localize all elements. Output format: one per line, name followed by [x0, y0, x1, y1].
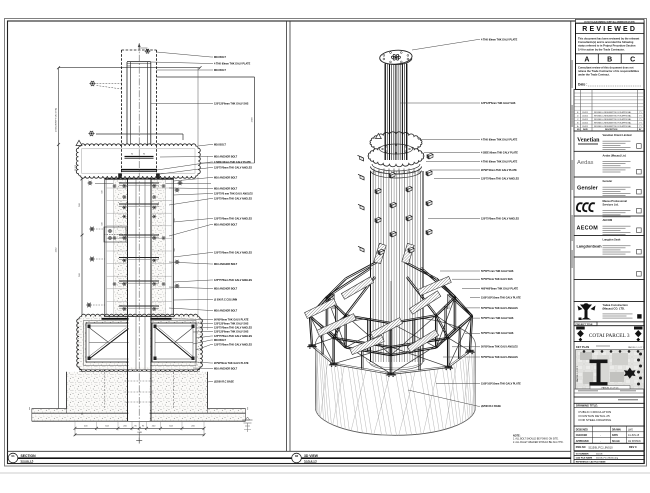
svg-text:1768: 1768: [252, 117, 254, 123]
svg-text:1232: 1232: [56, 247, 58, 253]
svg-text:relieve the Trade Contractor o: relieve the Trade Contractor of its resp…: [578, 69, 640, 73]
svg-text:M16 BOLT: M16 BOLT: [214, 143, 226, 146]
svg-text:02: 02: [295, 454, 299, 458]
svg-text:under the Trade Contract.: under the Trade Contract.: [578, 73, 610, 77]
svg-text:APPROVED: APPROVED: [576, 440, 589, 443]
svg-text:Consultant review of this docu: Consultant review of this document does …: [578, 65, 634, 69]
svg-text:90*90*8mm THK GALV PLATE: 90*90*8mm THK GALV PLATE: [214, 318, 249, 321]
svg-text:KEY PLAN: KEY PLAN: [576, 345, 589, 349]
svg-text:SECTION: SECTION: [21, 454, 37, 458]
svg-text:01: 01: [11, 454, 15, 458]
svg-text:500: 500: [174, 248, 176, 251]
svg-text:C: C: [630, 56, 635, 63]
svg-text:DRAWING TITLE:: DRAWING TITLE:: [576, 404, 598, 408]
svg-text:REVISED & RESUBMITTED FOR APPR: REVISED & RESUBMITTED FOR APPROVAL: [594, 118, 631, 121]
svg-text:1768 (VERIFY ON SITE): 1768 (VERIFY ON SITE): [56, 108, 58, 132]
svg-text:DATE: DATE: [612, 434, 619, 437]
svg-text:2. ALL FILLET WELDED SHOULD B: 2. ALL FILLET WELDED SHOULD BE 3mm THK.: [513, 441, 564, 444]
svg-text:M16 ANCHOR BOLT: M16 ANCHOR BOLT: [214, 176, 238, 179]
svg-text:DRAWN: DRAWN: [612, 429, 621, 432]
svg-text:Date :: Date :: [578, 83, 587, 87]
svg-text:Services Ltd.: Services Ltd.: [603, 203, 619, 207]
svg-text:4 SIDE 90mm THK GALV PLATE: 4 SIDE 90mm THK GALV PLATE: [214, 161, 251, 164]
svg-text:50*50*5 mm THK GALV SHS: 50*50*5 mm THK GALV SHS: [481, 270, 514, 273]
svg-text:SCALE 1:5: SCALE 1:5: [304, 459, 317, 463]
svg-text:15/4/15: 15/4/15: [582, 126, 588, 128]
svg-text:500: 500: [101, 222, 103, 225]
svg-text:Yadea Construction: Yadea Construction: [603, 303, 629, 307]
svg-text:460*460*8mm THK GALV PLATE: 460*460*8mm THK GALV PLATE: [481, 288, 519, 291]
svg-text:∅ 500 R.C COLUMN: ∅ 500 R.C COLUMN: [214, 298, 237, 301]
svg-text:M16 ANCHOR BOLT: M16 ANCHOR BOLT: [214, 223, 238, 226]
svg-text:1100*100*10mm THK GALV PLATE: 1100*100*10mm THK GALV PLATE: [481, 383, 521, 386]
svg-text:15/4/15: 15/4/15: [582, 112, 588, 114]
svg-text:4 THK 90mm THK GALV PLATE: 4 THK 90mm THK GALV PLATE: [481, 138, 518, 141]
svg-text:M16 ANCHOR BOLT: M16 ANCHOR BOLT: [214, 367, 238, 370]
svg-text:90*90*10mm THK GALV PLATE: 90*90*10mm THK GALV PLATE: [481, 169, 517, 172]
svg-text:AECOM: AECOM: [577, 226, 599, 232]
svg-text:Gensler: Gensler: [577, 186, 599, 192]
svg-text:A: A: [584, 56, 589, 63]
svg-text:FOR STEEL DRAWING: FOR STEEL DRAWING: [579, 418, 612, 422]
svg-text:5115/B_PCJ_8V010: 5115/B_PCJ_8V010: [589, 445, 614, 449]
svg-text:LWO: LWO: [628, 430, 633, 432]
svg-text:1100*100*10mm THK GALV PLATE: 1100*100*10mm THK GALV PLATE: [481, 297, 521, 300]
svg-text:3D VIEW: 3D VIEW: [304, 454, 319, 458]
svg-text:Venetian: Venetian: [577, 138, 600, 144]
svg-text:CAD FILE NAME: CAD FILE NAME: [576, 457, 593, 460]
svg-text:M16 ANCHOR BOLT: M16 ANCHOR BOLT: [214, 155, 238, 158]
svg-text:REVIEWED: REVIEWED: [582, 26, 637, 33]
svg-text:Aedas (Macau) Ltd.: Aedas (Macau) Ltd.: [603, 154, 627, 158]
svg-text:REV C: REV C: [629, 445, 637, 449]
svg-text:125*75*8mm THK GALV ANGLES: 125*75*8mm THK GALV ANGLES: [214, 279, 252, 282]
svg-text:M16 ANCHOR BOLT: M16 ANCHOR BOLT: [214, 187, 238, 190]
svg-text:125*125*6mm THK GALV SHS: 125*125*6mm THK GALV SHS: [214, 102, 249, 105]
svg-text:4 THK 90mm THK GALV PLATE: 4 THK 90mm THK GALV PLATE: [214, 62, 251, 65]
svg-text:M16 ANCHOR BOLT: M16 ANCHOR BOLT: [214, 263, 238, 266]
svg-text:(Macau) CO. LTD.: (Macau) CO. LTD.: [603, 306, 625, 310]
svg-text:50*50*5mm THK GALV ANGLES: 50*50*5mm THK GALV ANGLES: [481, 307, 518, 310]
svg-text:5.4 for action by the Trade Co: 5.4 for action by the Trade Contractor.: [578, 47, 625, 51]
svg-text:125*125*6mm THK GALV SHS: 125*125*6mm THK GALV SHS: [214, 322, 249, 325]
svg-text:50*50*5mm THK GALV ANGLES: 50*50*5mm THK GALV ANGLES: [481, 346, 518, 349]
svg-text:M16 BOLT: M16 BOLT: [214, 339, 226, 342]
svg-text:50*50*5mm THK GALV SHS: 50*50*5mm THK GALV SHS: [481, 278, 513, 281]
svg-text:Venetian Orient Limited: Venetian Orient Limited: [603, 133, 632, 137]
svg-text:90*90*8mm THK GALV PLATE: 90*90*8mm THK GALV PLATE: [214, 362, 249, 365]
svg-text:50*50*5 mm THK GALV SHS: 50*50*5 mm THK GALV SHS: [481, 317, 514, 320]
svg-text:SCALE 1:5: SCALE 1:5: [21, 459, 34, 463]
svg-text:M16 BOLT: M16 BOLT: [214, 69, 226, 72]
svg-text:15/4/15: 15/4/15: [582, 123, 588, 125]
svg-text:AS SHOWN: AS SHOWN: [628, 440, 641, 443]
svg-text:125*125*6mm THK GALV SHS: 125*125*6mm THK GALV SHS: [481, 102, 516, 105]
svg-text:M16 BOLT: M16 BOLT: [214, 56, 226, 59]
svg-text:LangdonSeah: LangdonSeah: [577, 245, 603, 249]
svg-text:Macau Professional: Macau Professional: [603, 199, 628, 203]
svg-text:CHECKED: CHECKED: [576, 435, 588, 437]
svg-text:4 THK 90mm THK GALV PLATE: 4 THK 90mm THK GALV PLATE: [481, 160, 518, 163]
svg-text:125*75*8mm THK GALV ANGLES: 125*75*8mm THK GALV ANGLES: [214, 197, 252, 200]
svg-text:Aedas: Aedas: [577, 160, 594, 166]
svg-text:125*75*8mm THK GALV ANGLES: 125*75*8mm THK GALV ANGLES: [214, 251, 252, 254]
svg-text:M16 ANCHOR BOLT: M16 ANCHOR BOLT: [214, 309, 238, 312]
svg-text:125*75*8mm THK GALV ANGLES: 125*75*8mm THK GALV ANGLES: [214, 343, 252, 346]
svg-text:Consultants(s) and is accorded: Consultants(s) and is accorded the follo…: [578, 40, 634, 44]
svg-text:REVISED & RESUBMITTED FOR APPR: REVISED & RESUBMITTED FOR APPROVAL: [594, 122, 631, 125]
svg-text:∅2500 R.C BASE: ∅2500 R.C BASE: [481, 405, 501, 408]
svg-text:PARCEL 1, LOT 3: PARCEL 1, LOT 3: [576, 365, 579, 382]
svg-text:SCALE: SCALE: [612, 440, 620, 443]
svg-text:PARCEL 1, LOT 2: PARCEL 1, LOT 2: [628, 346, 645, 349]
svg-text:125*125*6mm THK GALV SHS: 125*125*6mm THK GALV SHS: [214, 330, 249, 333]
svg-text:REVISED & RESUBMITTED FOR APPR: REVISED & RESUBMITTED FOR APPROVAL: [594, 111, 631, 114]
svg-text:M16 ANCHOR BOLT: M16 ANCHOR BOLT: [214, 287, 238, 290]
svg-text:125*75*8mm THK GALV ANGLES: 125*75*8mm THK GALV ANGLES: [214, 326, 252, 329]
svg-text:DESIGNED: DESIGNED: [576, 430, 588, 432]
svg-text:Langdon Seah: Langdon Seah: [603, 238, 621, 242]
svg-text:90 500: 90 500: [75, 165, 77, 171]
svg-text:NOTE:: NOTE:: [513, 434, 521, 437]
svg-text:14-JUN-15: 14-JUN-15: [628, 435, 640, 437]
svg-text:REFERENCE CAD FILE NAME: REFERENCE CAD FILE NAME: [576, 461, 606, 464]
svg-text:DWG NO: DWG NO: [576, 447, 586, 449]
svg-text:∅2500 R.C BASE: ∅2500 R.C BASE: [214, 380, 234, 383]
svg-text:15/4/15: 15/4/15: [582, 119, 588, 121]
svg-text:COTAI PARCEL 3: COTAI PARCEL 3: [589, 333, 630, 339]
svg-text:90: 90: [131, 154, 133, 156]
svg-text:125*75*8mm THK GALV ANGLES: 125*75*8mm THK GALV ANGLES: [214, 217, 252, 220]
svg-text:15/4/15: 15/4/15: [582, 116, 588, 118]
svg-text:50*50*5 mm THK GALV SHS: 50*50*5 mm THK GALV SHS: [481, 332, 514, 335]
svg-text:REVISED & RESUBMITTED FOR APPR: REVISED & RESUBMITTED FOR APPROVAL: [594, 115, 631, 118]
svg-text:50*50*5mm THK GALV ANGLES: 50*50*5mm THK GALV ANGLES: [481, 356, 518, 359]
svg-text:500: 500: [101, 190, 103, 193]
svg-text:500: 500: [174, 218, 176, 221]
svg-text:125*75*8 mm THK GALV ANGLES: 125*75*8 mm THK GALV ANGLES: [214, 192, 253, 195]
svg-text:status referred to in Projec: status referred to in Project Procedure …: [578, 44, 636, 48]
svg-text:4 SIDE 90mm THK GALV PLATE: 4 SIDE 90mm THK GALV PLATE: [481, 151, 518, 154]
svg-text:B: B: [607, 56, 612, 63]
svg-text:AECOM: AECOM: [603, 218, 613, 222]
svg-text:1. ALL BOLT SHOULD BE FIXING: 1. ALL BOLT SHOULD BE FIXING ON SITE.: [513, 438, 559, 441]
svg-text:REVISED & RESUBMITTED FOR APPR: REVISED & RESUBMITTED FOR APPROVAL: [594, 125, 631, 128]
svg-text:125*75*8mm THK GALV ANGLES: 125*75*8mm THK GALV ANGLES: [481, 177, 519, 180]
svg-text:Gensler: Gensler: [603, 179, 613, 183]
svg-text:125*75*8mm THK GALV ANGLES: 125*75*8mm THK GALV ANGLES: [481, 217, 519, 220]
svg-text:125*75*8mm THK GALV ANGLES: 125*75*8mm THK GALV ANGLES: [214, 335, 252, 338]
svg-text:This document has been reviewe: This document has been reviewed by the r…: [578, 37, 639, 41]
svg-text:4 THK 90mm THK GALV PLATE: 4 THK 90mm THK GALV PLATE: [481, 38, 518, 41]
svg-text:125*75*8mm THK GALV ANGLES: 125*75*8mm THK GALV ANGLES: [214, 166, 252, 169]
svg-text:90: 90: [143, 154, 145, 156]
